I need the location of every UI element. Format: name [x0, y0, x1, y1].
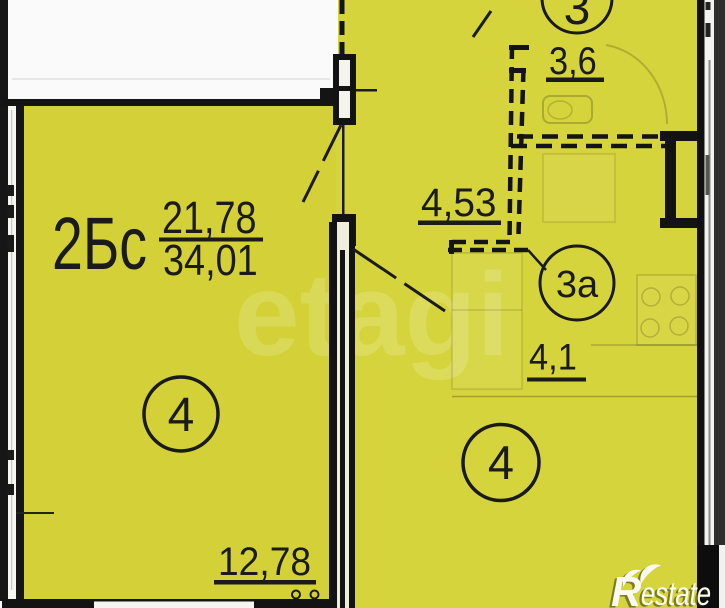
svg-text:R: R [611, 568, 642, 608]
svg-text:estate: estate [641, 576, 711, 608]
svg-text:2Бс: 2Бс [52, 202, 147, 285]
svg-text:12,78: 12,78 [218, 540, 311, 585]
svg-text:3: 3 [564, 0, 591, 35]
svg-text:4: 4 [168, 389, 195, 442]
svg-text:3,6: 3,6 [549, 39, 597, 83]
svg-text:3а: 3а [556, 264, 599, 306]
svg-text:4: 4 [488, 436, 514, 489]
svg-text:4,1: 4,1 [529, 336, 577, 377]
svg-text:34,01: 34,01 [163, 235, 258, 284]
svg-text:4,53: 4,53 [421, 180, 496, 225]
